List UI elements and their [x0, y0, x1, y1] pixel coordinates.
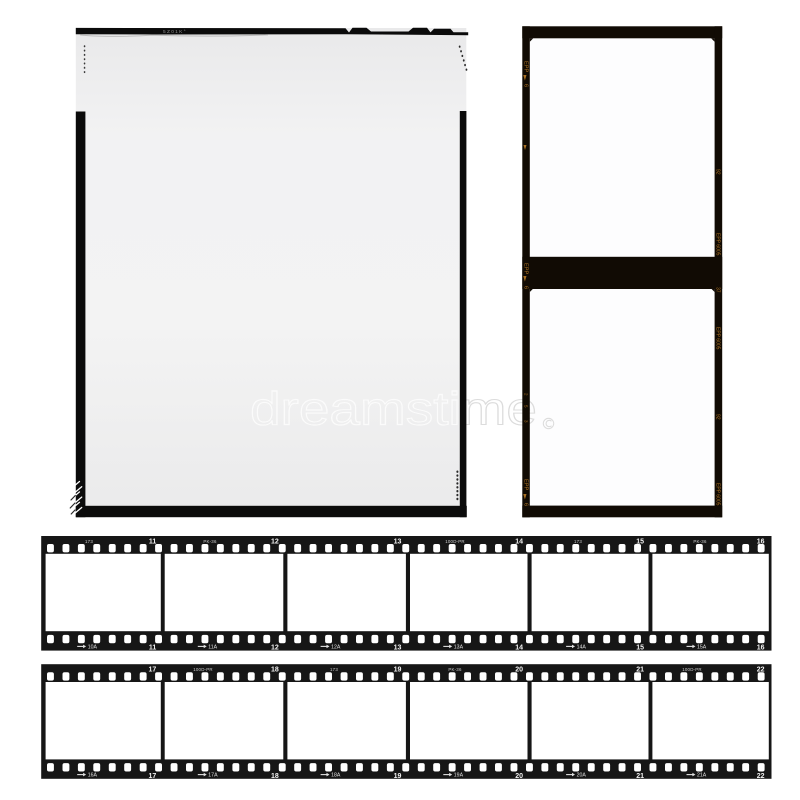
- svg-text:18: 18: [271, 773, 279, 780]
- svg-text:16: 16: [757, 645, 765, 652]
- svg-text:14: 14: [515, 538, 523, 545]
- svg-text:11: 11: [149, 645, 157, 652]
- svg-text:19: 19: [394, 773, 402, 780]
- svg-text:5Z01K°: 5Z01K°: [163, 29, 187, 35]
- svg-text:EPP: EPP: [522, 263, 528, 274]
- svg-text:20: 20: [515, 773, 523, 780]
- svg-text:20A: 20A: [577, 773, 587, 779]
- svg-text:13: 13: [394, 645, 402, 652]
- svg-text:PK-36: PK-36: [448, 667, 462, 672]
- svg-text:100D-PR: 100D-PR: [682, 667, 701, 672]
- svg-text:16A: 16A: [88, 773, 98, 779]
- svg-text:173: 173: [85, 539, 93, 544]
- svg-text:173: 173: [330, 667, 338, 672]
- svg-text:EPP: EPP: [522, 61, 528, 72]
- svg-text:11: 11: [149, 538, 157, 545]
- svg-text:10A: 10A: [88, 644, 98, 650]
- svg-text:21A: 21A: [697, 773, 707, 779]
- svg-text:6: 6: [522, 84, 528, 87]
- svg-text:6: 6: [522, 503, 528, 506]
- svg-text:17A: 17A: [208, 773, 218, 779]
- svg-text:12A: 12A: [331, 644, 341, 650]
- svg-text:11A: 11A: [208, 644, 217, 650]
- svg-text:92: 92: [714, 414, 720, 420]
- svg-text:14: 14: [515, 645, 523, 652]
- svg-text:21: 21: [636, 773, 644, 780]
- svg-text:18A: 18A: [331, 773, 341, 779]
- svg-text:EPP: EPP: [522, 479, 528, 490]
- svg-text:14A: 14A: [577, 644, 587, 650]
- svg-text:12: 12: [271, 538, 279, 545]
- svg-text:16: 16: [757, 538, 765, 545]
- svg-text:EPP 6005: EPP 6005: [714, 233, 720, 256]
- svg-text:15A: 15A: [697, 644, 707, 650]
- svg-text:EPP 6005: EPP 6005: [714, 327, 720, 350]
- svg-text:13: 13: [394, 538, 402, 545]
- svg-text:12: 12: [271, 645, 279, 652]
- svg-text:19: 19: [394, 667, 402, 674]
- svg-text:37: 37: [714, 287, 720, 293]
- svg-text:17: 17: [149, 667, 157, 674]
- svg-text:PK-36: PK-36: [693, 539, 707, 544]
- svg-text:92: 92: [714, 169, 720, 175]
- svg-text:100D-PR: 100D-PR: [445, 539, 464, 544]
- svg-text:21: 21: [636, 667, 644, 674]
- svg-text:20: 20: [515, 667, 523, 674]
- svg-text:13A: 13A: [454, 644, 464, 650]
- svg-text:PK-36: PK-36: [203, 539, 217, 544]
- svg-text:15: 15: [636, 538, 644, 545]
- svg-text:18: 18: [271, 667, 279, 674]
- svg-text:100D-PR: 100D-PR: [193, 667, 212, 672]
- svg-text:173: 173: [574, 539, 582, 544]
- svg-text:17: 17: [149, 773, 157, 780]
- svg-text:6: 6: [522, 286, 528, 289]
- svg-text:22: 22: [757, 773, 765, 780]
- svg-text:EPP 6005: EPP 6005: [714, 483, 720, 506]
- svg-text:15: 15: [636, 645, 644, 652]
- svg-text:19A: 19A: [454, 773, 464, 779]
- svg-text:22: 22: [757, 667, 765, 674]
